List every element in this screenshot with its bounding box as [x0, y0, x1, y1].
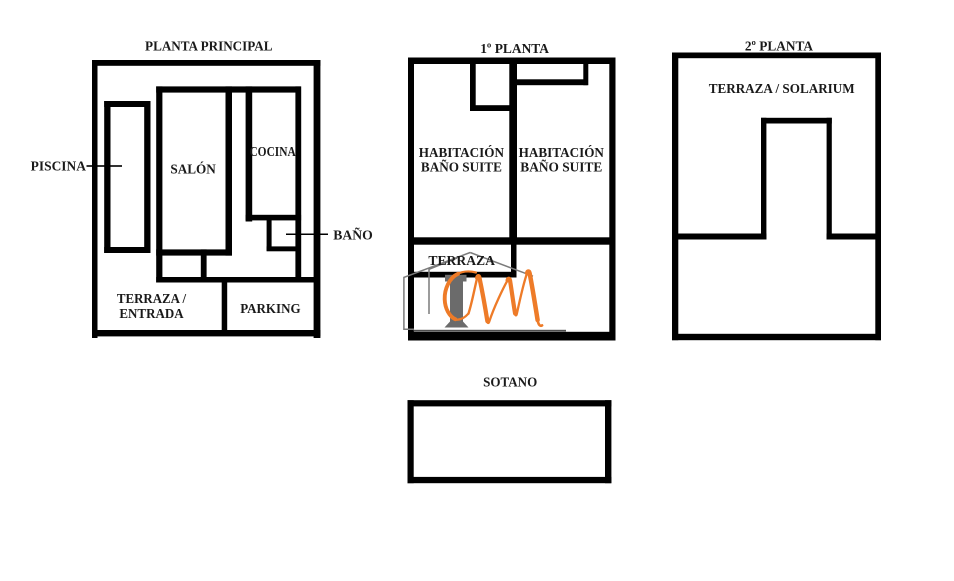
- svg-text:2º PLANTA: 2º PLANTA: [745, 39, 814, 54]
- svg-text:HABITACIÓN: HABITACIÓN: [519, 144, 604, 161]
- svg-text:SOTANO: SOTANO: [483, 375, 537, 390]
- svg-text:COCINA: COCINA: [249, 145, 296, 160]
- svg-text:TERRAZA: TERRAZA: [428, 254, 495, 269]
- svg-text:PLANTA PRINCIPAL: PLANTA PRINCIPAL: [145, 39, 273, 54]
- svg-text:ENTRADA: ENTRADA: [119, 307, 184, 322]
- svg-text:1º PLANTA: 1º PLANTA: [480, 42, 550, 57]
- svg-text:BAÑO: BAÑO: [333, 225, 373, 243]
- svg-text:BAÑO SUITE: BAÑO SUITE: [421, 157, 502, 175]
- svg-text:SALÓN: SALÓN: [170, 161, 216, 178]
- svg-text:PISCINA: PISCINA: [31, 160, 87, 175]
- svg-text:BAÑO SUITE: BAÑO SUITE: [520, 157, 602, 175]
- svg-text:TERRAZA /: TERRAZA /: [117, 292, 187, 307]
- svg-text:HABITACIÓN: HABITACIÓN: [419, 144, 504, 161]
- svg-text:TERRAZA / SOLARIUM: TERRAZA / SOLARIUM: [709, 82, 855, 97]
- svg-text:PARKING: PARKING: [240, 302, 300, 317]
